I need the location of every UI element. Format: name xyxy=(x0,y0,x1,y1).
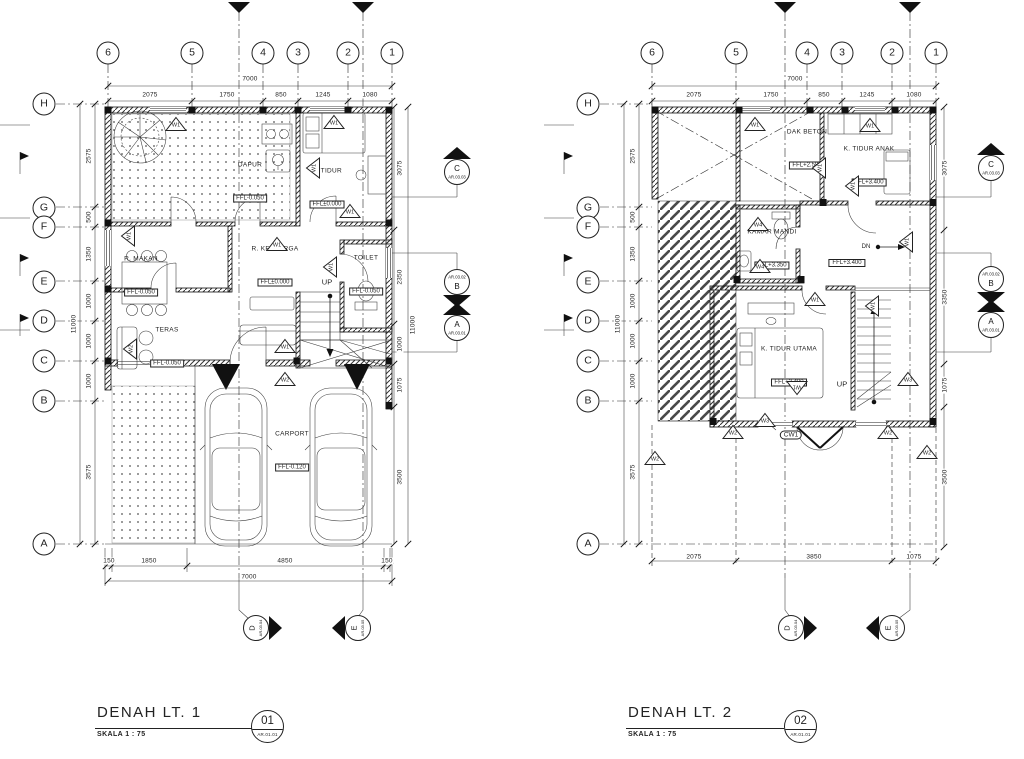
dimension-text: 850 xyxy=(274,92,287,99)
window-marker-label: W3 xyxy=(897,378,919,384)
room-name: K. TIDUR ANAK xyxy=(844,146,895,153)
window-marker-w1: W1 xyxy=(323,115,345,130)
grid-bubble-6: 6 xyxy=(641,42,664,65)
window-marker-label: W1 xyxy=(165,123,187,129)
window-marker-label: W1 xyxy=(744,123,766,129)
grid-bubble-4: 4 xyxy=(796,42,819,65)
section-marker-d: DAR.03.04 xyxy=(775,613,819,643)
svg-text:AR.03.04: AR.03.04 xyxy=(258,619,263,636)
grid-bubble-c: C xyxy=(577,350,600,373)
dimension-text: 1080 xyxy=(905,92,922,99)
window-marker-w1: W1 xyxy=(339,204,361,219)
dimension-text: 1000 xyxy=(630,332,637,349)
dimension-text: 1080 xyxy=(361,92,378,99)
plan2-scale: SKALA 1 : 75 xyxy=(628,731,677,738)
grid-bubble-e: E xyxy=(33,271,56,294)
room-label-dapur: DAPURFFL-0.050 xyxy=(233,162,267,205)
svg-text:B: B xyxy=(988,279,993,288)
window-marker-w3: W3 xyxy=(897,372,919,387)
dimension-text: 1350 xyxy=(86,245,93,262)
dimension-text: 1750 xyxy=(218,92,235,99)
window-marker-label: W2 xyxy=(916,451,938,457)
grid-bubble-5: 5 xyxy=(725,42,748,65)
room-elevation: FFL±0.000 xyxy=(258,279,293,287)
window-marker-label: W1 xyxy=(312,157,318,179)
window-marker-w1: W1 xyxy=(744,117,766,132)
svg-text:E: E xyxy=(884,625,893,630)
dimension-text: 1000 xyxy=(630,372,637,389)
window-marker-label: W1 xyxy=(323,121,345,127)
window-marker-w1: W1 xyxy=(306,157,321,179)
dimension-text: 7000 xyxy=(786,76,803,83)
dimension-text: 1000 xyxy=(86,372,93,389)
annotation-cw1: CW1 xyxy=(780,431,802,440)
dimension-text: 1075 xyxy=(942,376,949,393)
dimension-text: 3075 xyxy=(397,159,404,176)
window-marker-w1: W1 xyxy=(804,292,826,307)
room-elevation: FFL-0.120 xyxy=(275,464,309,472)
svg-text:A: A xyxy=(988,317,994,326)
grid-bubble-2: 2 xyxy=(337,42,360,65)
window-marker-label: W4 xyxy=(749,265,771,271)
svg-text:A: A xyxy=(454,320,460,329)
dimension-text: 3575 xyxy=(86,463,93,480)
dimension-text: 1850 xyxy=(140,558,157,565)
dimension-text: 2075 xyxy=(141,92,158,99)
svg-text:C: C xyxy=(454,164,460,173)
svg-text:D: D xyxy=(248,625,257,631)
room-name: DAK BETON xyxy=(787,129,827,136)
grid-bubble-6: 6 xyxy=(97,42,120,65)
dimension-text: 2075 xyxy=(685,554,702,561)
dimension-text: 150 xyxy=(102,558,115,565)
room-elevation: FFL-0.050 xyxy=(233,195,267,203)
window-marker-w2: W2 xyxy=(877,425,899,440)
dimension-text: 1350 xyxy=(630,245,637,262)
grid-bubble-h: H xyxy=(577,93,600,116)
blueprint-sheet: .ln{fill:none;stroke:#1f1f1f;stroke-widt… xyxy=(0,0,1024,759)
window-marker-label: W3 xyxy=(754,419,776,425)
window-marker-w1: W1 xyxy=(865,295,880,317)
window-marker-w4: W4 xyxy=(747,217,769,232)
svg-text:AR.03.04: AR.03.04 xyxy=(793,619,798,636)
dimension-text: 3575 xyxy=(630,463,637,480)
window-marker-w1: W1 xyxy=(899,231,914,253)
grid-bubble-2: 2 xyxy=(881,42,904,65)
window-marker-w1: W1 xyxy=(786,381,808,396)
window-marker-label: W1 xyxy=(266,243,288,249)
dimension-text: 1000 xyxy=(86,292,93,309)
window-marker-w2: W2 xyxy=(644,451,666,466)
dimension-text: 3500 xyxy=(942,468,949,485)
room-name: TERAS xyxy=(150,327,184,334)
window-marker-w2: W2 xyxy=(722,425,744,440)
grid-bubble-a: A xyxy=(33,533,56,556)
plan2-sheet-ref: 02 AR.01.01 xyxy=(784,710,817,743)
annotation-up: UP xyxy=(322,278,332,287)
dimension-text: 1000 xyxy=(630,292,637,309)
dimension-text: 1000 xyxy=(86,332,93,349)
svg-text:AR.03.01: AR.03.01 xyxy=(448,331,466,336)
window-marker-w1: W1 xyxy=(165,117,187,132)
dimension-text: 3500 xyxy=(397,468,404,485)
window-marker-w3: W3 xyxy=(754,413,776,428)
grid-bubble-h: H xyxy=(33,93,56,116)
dimension-text: 11000 xyxy=(410,315,417,336)
dimension-text: 2350 xyxy=(397,268,404,285)
dimension-text: 3850 xyxy=(805,554,822,561)
window-marker-w2: W2 xyxy=(123,338,138,360)
grid-bubble-b: B xyxy=(33,390,56,413)
plan1-title-underline xyxy=(95,728,252,729)
window-marker-label: W1 xyxy=(804,298,826,304)
window-marker-w2: W2 xyxy=(916,445,938,460)
svg-text:E: E xyxy=(350,625,359,630)
plan2-sheet-number: 02 xyxy=(785,711,816,730)
dimension-text: 1075 xyxy=(905,554,922,561)
svg-text:D: D xyxy=(783,625,792,631)
annotation-dn: DN xyxy=(862,244,871,250)
dimension-text: 1245 xyxy=(858,92,875,99)
svg-text:AR.03.05: AR.03.05 xyxy=(360,619,365,636)
dimension-text: 4850 xyxy=(276,558,293,565)
dimension-text: 1245 xyxy=(314,92,331,99)
grid-bubble-1: 1 xyxy=(381,42,404,65)
plan1-sheet-ref: 01 AR.01.01 xyxy=(251,710,284,743)
window-marker-label: W1 xyxy=(329,256,335,278)
window-marker-label: W1 xyxy=(339,210,361,216)
window-marker-w1: W1 xyxy=(859,118,881,133)
room-name: DAPUR xyxy=(233,162,267,169)
dimension-text: 2575 xyxy=(86,147,93,164)
section-marker-e: EAR.03.05 xyxy=(864,613,908,643)
plan1-sheet-number: 01 xyxy=(252,711,283,730)
grid-bubble-a: A xyxy=(577,533,600,556)
window-marker-label: W2 xyxy=(274,378,296,384)
window-marker-label: W2 xyxy=(722,431,744,437)
dimension-text: 3075 xyxy=(942,159,949,176)
dimension-text: 11000 xyxy=(71,314,78,335)
window-marker-w1: W1 xyxy=(323,256,338,278)
window-marker-w2: W2 xyxy=(274,372,296,387)
section-marker-d: DAR.03.04 xyxy=(240,613,284,643)
plan1-title: DENAH LT. 1 xyxy=(97,704,202,721)
section-marker-a: AAR.03.01 xyxy=(976,299,1006,341)
svg-text:AR.03.03: AR.03.03 xyxy=(982,171,1000,176)
dimension-text: 500 xyxy=(86,210,93,223)
grid-bubble-f: F xyxy=(33,216,56,239)
dimension-text: 3350 xyxy=(942,288,949,305)
room-name: R. MAKAN xyxy=(124,256,158,263)
svg-text:AR.03.01: AR.03.01 xyxy=(982,328,1000,333)
grid-bubble-1: 1 xyxy=(925,42,948,65)
plan1-scale: SKALA 1 : 75 xyxy=(97,731,146,738)
grid-bubble-c: C xyxy=(33,350,56,373)
svg-text:C: C xyxy=(988,160,994,169)
grid-bubble-3: 3 xyxy=(287,42,310,65)
room-elevation: FFL-0.050 xyxy=(150,360,184,368)
window-marker-label: W1 xyxy=(851,175,857,197)
dimension-text: 1075 xyxy=(397,376,404,393)
window-marker-label: W2 xyxy=(877,431,899,437)
room-elevation: FFL-0.050 xyxy=(349,288,383,296)
grid-bubble-b: B xyxy=(577,390,600,413)
room-label-r-makan: R. MAKANFFL-0.050 xyxy=(124,256,158,299)
dimension-text: 1000 xyxy=(397,335,404,352)
section-marker-c: CAR.03.03 xyxy=(976,142,1006,184)
dimension-text: 1750 xyxy=(762,92,779,99)
grid-bubble-d: D xyxy=(577,310,600,333)
room-name: K. TIDUR UTAMA xyxy=(761,346,817,353)
window-marker-label: W1 xyxy=(786,384,808,390)
room-label-teras: TERASFFL-0.050 xyxy=(150,327,184,370)
window-marker-w1: W1 xyxy=(812,157,827,179)
plan2-title: DENAH LT. 2 xyxy=(628,704,733,721)
room-label-toilet: TOILETFFL-0.050 xyxy=(349,255,383,298)
window-marker-label: W1 xyxy=(274,345,296,351)
svg-text:AR.03.02: AR.03.02 xyxy=(982,272,1000,277)
room-label-carport: CARPORTFFL-0.120 xyxy=(275,431,309,474)
grid-bubble-5: 5 xyxy=(181,42,204,65)
room-label-r-keluarga: R. KELUARGAFFL±0.000 xyxy=(251,246,298,289)
window-marker-w1: W1 xyxy=(121,225,136,247)
grid-bubble-e: E xyxy=(577,271,600,294)
annotation-ffl-3-400: FFL+3.400 xyxy=(828,259,865,267)
dimension-text: 2575 xyxy=(630,147,637,164)
window-marker-label: W1 xyxy=(859,124,881,130)
annotation-layer: 654321HGFEDCBA70002075175085012451080257… xyxy=(0,0,1024,759)
section-marker-a: AAR.03.01 xyxy=(442,302,472,344)
plan2-title-underline xyxy=(626,728,784,729)
window-marker-w1: W1 xyxy=(274,339,296,354)
dimension-text: 150 xyxy=(380,558,393,565)
dimension-text: 7000 xyxy=(241,76,258,83)
window-marker-label: W1 xyxy=(127,225,133,247)
window-marker-label: W4 xyxy=(747,223,769,229)
dimension-text: 2075 xyxy=(685,92,702,99)
window-marker-label: W1 xyxy=(871,295,877,317)
window-marker-label: W2 xyxy=(129,338,135,360)
grid-bubble-4: 4 xyxy=(252,42,275,65)
dimension-text: 7000 xyxy=(240,574,257,581)
window-marker-w1: W1 xyxy=(266,237,288,252)
annotation-up: UP xyxy=(837,380,847,389)
room-elevation: FFL-0.050 xyxy=(124,289,158,297)
svg-text:AR.03.03: AR.03.03 xyxy=(448,175,466,180)
room-name: TOILET xyxy=(349,255,383,262)
svg-text:AR.03.02: AR.03.02 xyxy=(448,275,466,280)
room-name: CARPORT xyxy=(275,431,309,438)
window-marker-label: W1 xyxy=(818,157,824,179)
section-marker-e: EAR.03.05 xyxy=(330,613,374,643)
dimension-text: 11000 xyxy=(615,314,622,335)
section-marker-c: CAR.03.03 xyxy=(442,146,472,188)
svg-text:B: B xyxy=(454,282,459,291)
window-marker-label: W1 xyxy=(905,231,911,253)
window-marker-w1: W1 xyxy=(845,175,860,197)
dimension-text: 500 xyxy=(630,210,637,223)
grid-bubble-3: 3 xyxy=(831,42,854,65)
window-marker-w4: W4 xyxy=(749,259,771,274)
svg-text:AR.03.05: AR.03.05 xyxy=(894,619,899,636)
dimension-text: 850 xyxy=(817,92,830,99)
grid-bubble-d: D xyxy=(33,310,56,333)
grid-bubble-f: F xyxy=(577,216,600,239)
window-marker-label: W2 xyxy=(644,457,666,463)
